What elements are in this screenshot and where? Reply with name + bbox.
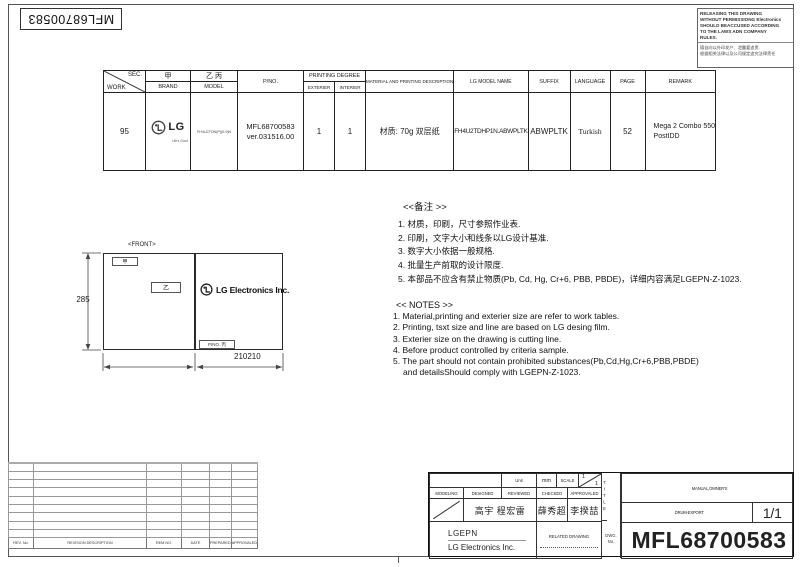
rotated-part-number: MFL68700583 [28, 12, 114, 26]
related-drawing-cell: RELATED DRAWING [537, 522, 602, 559]
designed-label: DESIGNED [464, 488, 502, 499]
spec-table: SEC. WORK 甲 乙 丙 P/NO. PRINTING DEGREE MA… [103, 70, 716, 171]
notes-en-item: 4. Before product controlled by criteria… [393, 345, 699, 356]
spec-header-exterier: EXTERIER [304, 82, 335, 93]
reviewed-label: REVIEWED [502, 488, 537, 499]
notes-cn-item: 1. 材质，印刷，尺寸参照作业表. [398, 218, 742, 232]
release-warning-chinese: 擅自向以外印发产、泄露要追责. 根据相关法律以及公司规定追究法律责任 [698, 43, 793, 59]
company-cell: LGEPN LG Electronics Inc. [430, 522, 537, 559]
title-label-vertical: TITLE [602, 473, 607, 521]
title-block: Unit mm SCALE 1 1 MODELING DESIGNED REVI… [428, 472, 794, 557]
spec-exterier-value: 1 [304, 93, 335, 171]
unit-value: mm [537, 474, 557, 488]
modeling-value [430, 499, 464, 522]
spec-suffix-value: ABWPLTK [528, 93, 570, 171]
spec-interier-value: 1 [335, 93, 366, 171]
related-drawing-label: RELATED DRAWING [537, 533, 601, 539]
scale-label: SCALE [557, 474, 579, 488]
sheet-number: 1/1 [752, 503, 792, 523]
notes-en-item: 5. The part should not contain prohibite… [393, 356, 699, 367]
rev-header-prepared: PREPARED [210, 538, 232, 549]
designed-name: 高宇 程宏雷 [464, 499, 537, 522]
dwg-no-label: DWG. No. [602, 521, 620, 557]
notes-en-title: << NOTES >> [396, 300, 453, 310]
slash-mark [430, 499, 463, 521]
release-warning-box: RELEASING THIS DRAWING WITHOUT PERMISSIO… [697, 8, 794, 68]
approved-name: 李揆喆 [568, 499, 602, 522]
rev-header-no: REV. No. [9, 538, 34, 549]
company-name: LG Electronics Inc. [448, 543, 536, 552]
spec-header-model: MODEL [191, 82, 238, 93]
spec-header-yi-bing: 乙 丙 [191, 71, 238, 82]
spec-header-page: PAGE [610, 71, 645, 93]
notes-cn-item: 5. 本部品不应含有禁止物质(Pb, Cd, Hg, Cr+6, PBB, PB… [398, 273, 742, 287]
spec-header-suffix: SUFFIX [528, 71, 570, 93]
spec-header-brand: BRAND [146, 82, 191, 93]
lg-face-icon [151, 120, 166, 135]
notes-en-item: 3. Exterier size on the drawing is cutti… [393, 334, 699, 345]
checked-label: CHECKED [537, 488, 568, 499]
spec-header-lg-model-name: LG MODEL NAME [454, 71, 528, 93]
checked-name: 薛秀超 [537, 499, 568, 522]
title-dwg-strip: TITLE DWG. No. [601, 473, 621, 558]
spec-pno-value: MFL68700583 ver.031516.00 [238, 93, 304, 171]
spec-header-remark: REMARK [645, 71, 715, 93]
spec-header-work: WORK [107, 85, 126, 91]
title-block-blank-cell [430, 474, 502, 488]
notes-cn-title: <<备注 >> [403, 199, 447, 213]
spec-header-material: MATERIAL AND PRINTING DESCRIPTION [366, 71, 454, 93]
spec-row: 95 LG Life's Good FH4U2TDN(P)(0-9)N MFL6… [104, 93, 716, 171]
spec-model-value: FH4U2TDN(P)(0-9)N [191, 93, 238, 171]
revision-table: REV. No. REVISION DESCRIPTION REM.NO. DA… [8, 462, 258, 549]
spec-remark-value: Mega 2 Combo 550 PostIDD [645, 93, 715, 171]
drawing-number: MFL68700583 [622, 523, 793, 559]
document-title-line2: DRUM-EXPORT [622, 503, 753, 523]
spec-lg-model-name-value: FH4U2TDHP1N.ABWPLTK [454, 93, 528, 171]
notes-en-item-continuation: and detailsShould comply with LGEPN-Z-10… [393, 367, 699, 378]
spec-header-pno: P/NO. [238, 71, 304, 93]
rev-header-date: DATE [182, 538, 210, 549]
notes-cn-item: 4. 批量生产前取的设计限度. [398, 259, 742, 273]
document-title-line1: MANUAL,OWNER'S [622, 474, 793, 503]
lg-logo: LG [151, 120, 184, 135]
notes-en-item: 2. Printing, tsxt size and line are base… [393, 322, 699, 333]
spec-material-value: 材质: 70g 双层纸 [366, 93, 454, 171]
title-block-title: MANUAL,OWNER'S DRUM-EXPORT 1/1 MFL687005… [621, 473, 793, 559]
unit-label: Unit [502, 474, 537, 488]
company-code: LGEPN [448, 529, 536, 538]
drawing-sheet: MFL68700583 RELEASING THIS DRAWING WITHO… [0, 0, 802, 567]
spec-header-jia: 甲 [146, 71, 191, 82]
border-center-tick [398, 556, 399, 563]
rev-header-rem-no: REM.NO. [147, 538, 182, 549]
notes-cn-item: 3. 数字大小依据一般规格. [398, 245, 742, 259]
modeling-label: MODELING [430, 488, 464, 499]
spec-language-value: Turkish [570, 93, 610, 171]
title-block-approvals: Unit mm SCALE 1 1 MODELING DESIGNED REVI… [429, 473, 602, 559]
release-warning-english: RELEASING THIS DRAWING WITHOUT PERMISSIO… [698, 9, 793, 43]
spec-brand-cell: LG Life's Good [146, 93, 191, 171]
spec-page-value: 52 [610, 93, 645, 171]
rotated-part-number-box: MFL68700583 [20, 8, 122, 30]
lg-tagline: Life's Good [146, 140, 190, 143]
spec-header-printing-degree: PRINTING DEGREE [304, 71, 366, 82]
notes-en-item: 1. Material,printing and exterier size a… [393, 311, 699, 322]
notes-en-list: 1. Material,printing and exterier size a… [393, 311, 699, 379]
spec-header-work-sec: SEC. WORK [104, 71, 146, 93]
spec-header-interier: INTERIER [335, 82, 366, 93]
notes-cn-item: 2. 印刷，文字大小和线条以LG设计基准. [398, 232, 742, 246]
rev-header-description: REVISION DESCRIPTION [34, 538, 147, 549]
spec-header-language: LANGUAGE [570, 71, 610, 93]
spec-work-value: 95 [104, 93, 146, 171]
scale-value: 1 1 [579, 474, 602, 488]
lg-logo-text: LG [168, 122, 184, 133]
rev-header-approved: APPROVALED [231, 538, 257, 549]
spec-header-sec: SEC. [128, 72, 142, 78]
related-drawing-dotted-line [540, 547, 598, 548]
approved-label: APPROVALED [568, 488, 602, 499]
notes-cn-list: 1. 材质，印刷，尺寸参照作业表. 2. 印刷，文字大小和线条以LG设计基准. … [398, 218, 742, 287]
dimension-lines [60, 238, 300, 380]
company-divider [448, 540, 526, 541]
